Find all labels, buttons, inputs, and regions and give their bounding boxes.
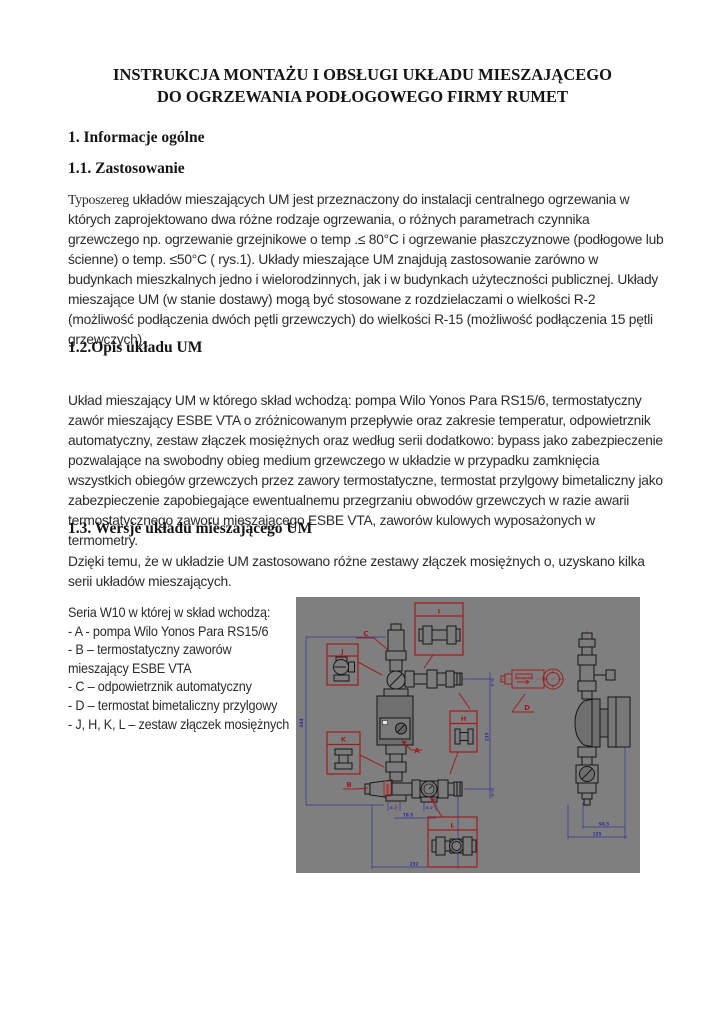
title-line-1: INSTRUKCJA MONTAŻU I OBSŁUGI UKŁADU MIES…: [40, 64, 685, 86]
paragraph-zastosowanie: Typoszereg układów mieszających UM jest …: [68, 190, 664, 350]
mixing-unit-drawing: 344 G 1" G 1" 78.5 232 235 G ½ G ½ 94.5 …: [296, 597, 640, 873]
series-item-d: - D – termostat bimetaliczny przylgowy: [68, 697, 291, 716]
series-item-c: - C – odpowietrznik automatyczny: [68, 678, 291, 697]
dim-side-width: 94.5: [599, 822, 609, 827]
dim-front-height: 344: [299, 718, 305, 727]
dim-thread-bottom: G ½: [491, 789, 495, 797]
paragraph-first-word: Typoszereg: [68, 192, 129, 207]
technical-drawing-figure: 344 G 1" G 1" 78.5 232 235 G ½ G ½ 94.5 …: [296, 597, 640, 873]
series-intro: Seria W10 w której w skład wchodzą:: [68, 604, 291, 623]
part-label-a: A: [414, 747, 420, 755]
paragraph-wersje-ukladu: Dzięki temu, że w układzie UM zastosowan…: [68, 552, 664, 592]
heading-wersje-ukladu: 1.3. Wersje układu mieszającego UM: [68, 520, 312, 538]
dim-thread-top: G ½: [491, 679, 495, 687]
dim-side-total: 135: [593, 832, 602, 837]
callout-label-h: H: [461, 715, 466, 723]
series-item-jhkl: - J, H, K, L – zestaw złączek mosiężnych: [68, 716, 291, 735]
callout-label-i: I: [438, 608, 440, 616]
heading-opis-ukladu: 1.2.Opis układu UM: [68, 339, 202, 357]
callout-label-l: L: [450, 822, 454, 830]
series-item-b-cont: mieszający ESBE VTA: [68, 660, 291, 679]
dim-thread-left: G 1": [390, 806, 399, 810]
title-line-2: DO OGRZEWANIA PODŁOGOWEGO FIRMY RUMET: [40, 86, 685, 108]
part-label-c: C: [363, 630, 368, 638]
heading-informacje-ogolne: 1. Informacje ogólne: [68, 129, 204, 147]
dim-total-width: 232: [410, 862, 419, 867]
series-item-a: - A - pompa Wilo Yonos Para RS15/6: [68, 623, 291, 642]
callout-label-j: J: [340, 648, 343, 656]
part-label-b: B: [346, 781, 351, 789]
series-w10-list: Seria W10 w której w skład wchodzą: - A …: [68, 604, 291, 734]
document-title: INSTRUKCJA MONTAŻU I OBSŁUGI UKŁADU MIES…: [40, 64, 685, 108]
series-item-b: - B – termostatyczny zaworów: [68, 641, 291, 660]
heading-zastosowanie: 1.1. Zastosowanie: [68, 160, 185, 178]
dim-thread-right: G 1": [426, 806, 435, 810]
dim-valve-spacing: 78.5: [403, 813, 413, 818]
paragraph-zastosowanie-text: układów mieszających UM jest przeznaczon…: [68, 192, 663, 347]
document-page: INSTRUKCJA MONTAŻU I OBSŁUGI UKŁADU MIES…: [0, 0, 725, 1024]
part-label-d: D: [524, 704, 530, 712]
dim-right-height: 235: [485, 733, 490, 742]
